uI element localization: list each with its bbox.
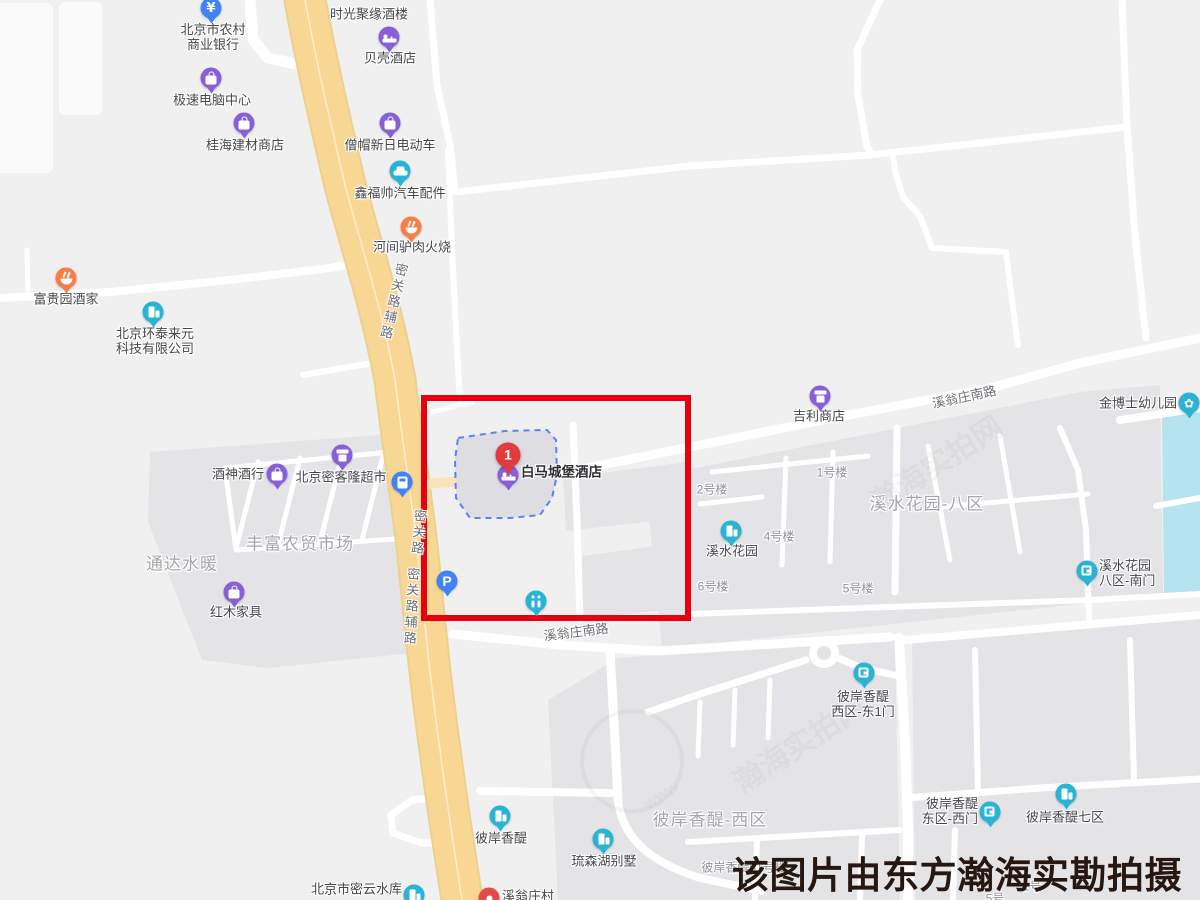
map-canvas[interactable]: 瀚海实拍网瀚海实拍网www 时光聚缘酒楼北京市农村商业银行贝壳酒店极速电脑中心桂…: [0, 0, 1200, 900]
result-marker-tail: [502, 466, 514, 475]
result-marker-layer: 1: [0, 0, 1200, 900]
photo-credit-caption: 该图片由东方瀚海实勘拍摄: [732, 845, 1182, 899]
result-marker-number: 1: [504, 447, 512, 463]
result-marker-1[interactable]: 1: [496, 443, 521, 468]
